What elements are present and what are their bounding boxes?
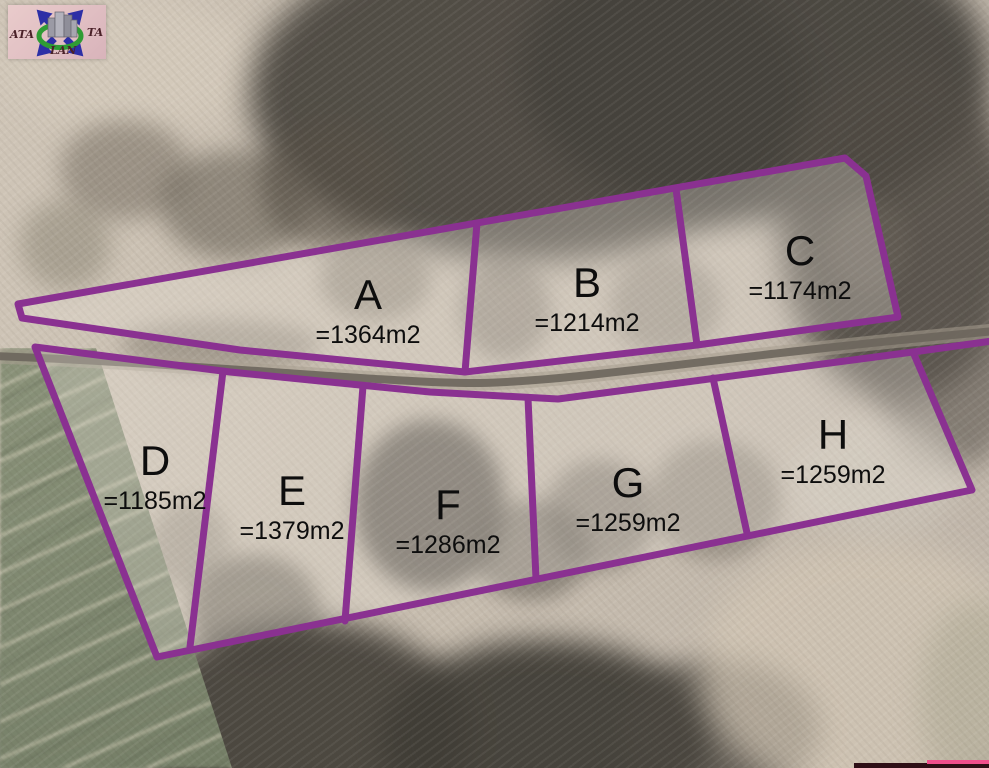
plot-label-d: D =1185m2 [103, 438, 206, 516]
plot-label-e: E =1379m2 [240, 468, 345, 546]
plot-label-h: H =1259m2 [781, 412, 886, 490]
logo-text-right: TA [87, 26, 104, 39]
plot-label-g: G =1259m2 [576, 460, 681, 538]
plot-label-a: A =1364m2 [316, 272, 421, 350]
plot-letter: B [535, 260, 640, 305]
plot-area: =1174m2 [748, 277, 851, 306]
plot-letter: E [240, 468, 345, 513]
logo-text-bottom: LAN [49, 44, 77, 57]
plot-area: =1364m2 [316, 321, 421, 350]
plot-area: =1259m2 [781, 461, 886, 490]
plot-label-f: F =1286m2 [396, 482, 501, 560]
plot-area: =1214m2 [535, 309, 640, 338]
bottom-pink-bar [927, 760, 989, 764]
plot-letter: F [396, 482, 501, 527]
plot-letter: A [316, 272, 421, 317]
plot-letter: C [748, 228, 851, 273]
plot-area: =1379m2 [240, 517, 345, 546]
agency-logo: ATA TA LAN [8, 5, 106, 59]
plot-letter: H [781, 412, 886, 457]
plot-letter: D [103, 438, 206, 483]
plot-area: =1286m2 [396, 531, 501, 560]
parcel-boundary-overlay [0, 0, 989, 768]
plot-letter: G [576, 460, 681, 505]
aerial-parcel-map: A =1364m2 B =1214m2 C =1174m2 D =1185m2 … [0, 0, 989, 768]
plot-label-b: B =1214m2 [535, 260, 640, 338]
logo-text-left: ATA [9, 28, 35, 41]
plot-area: =1185m2 [103, 487, 206, 516]
plot-label-c: C =1174m2 [748, 228, 851, 306]
plot-area: =1259m2 [576, 509, 681, 538]
